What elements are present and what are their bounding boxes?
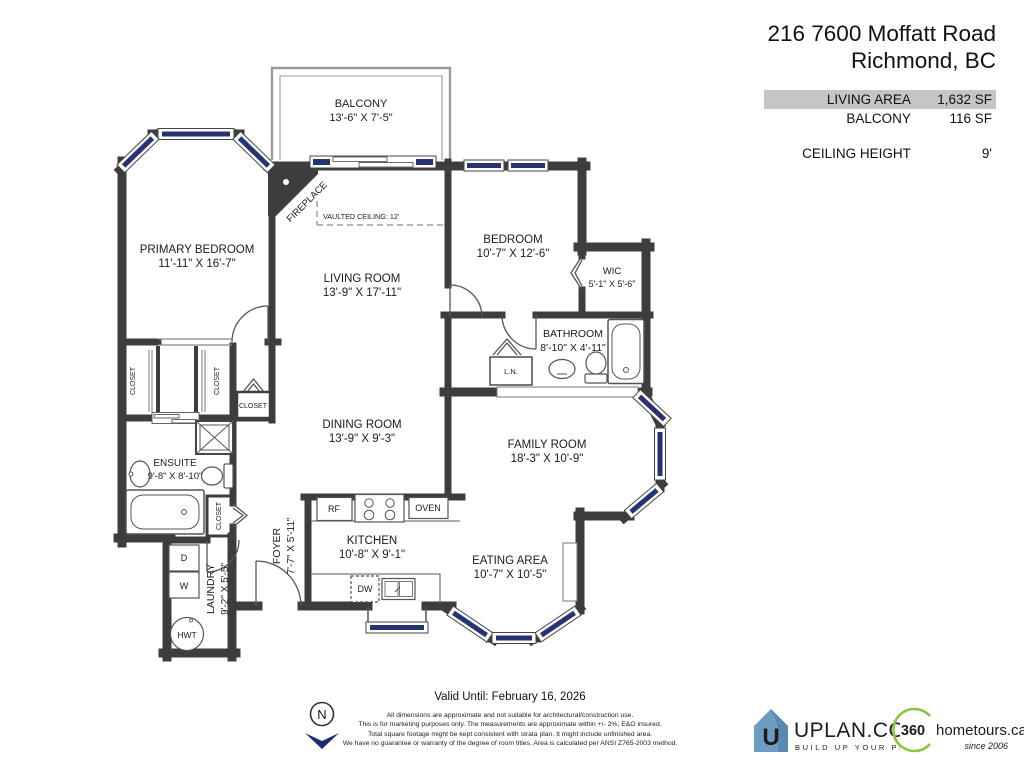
room-dims-kitchen: 10'-8" X 9'-1" <box>339 549 405 561</box>
closet-label-4: CLOSET <box>216 501 223 530</box>
hometours-name: hometours.ca <box>936 722 1024 739</box>
closet-label-1: CLOSET <box>130 366 137 395</box>
room-dims-foyer: 7'-7" X 5'-11" <box>286 517 297 574</box>
oven-label: OVEN <box>415 503 441 513</box>
bathroom-toilet <box>585 352 607 383</box>
bathtub <box>608 320 644 384</box>
room-label-living-room: LIVING ROOM <box>324 273 401 285</box>
room-label-eating-area: EATING AREA <box>472 555 548 567</box>
room-label-foyer: FOYER <box>271 527 283 564</box>
uplan-house-icon: U <box>754 709 788 752</box>
kitchen-sink <box>382 579 415 600</box>
header: 216 7600 Moffatt Road Richmond, BC LIVIN… <box>764 20 996 163</box>
stat-row-balcony: BALCONY 116 SF <box>764 109 996 128</box>
dishwasher-label: DW <box>358 584 373 594</box>
family-room-opening <box>497 387 638 397</box>
valid-until: Valid Until: February 16, 2026 <box>260 691 760 703</box>
eating-area-ledge <box>563 543 577 601</box>
room-label-family-room: FAMILY ROOM <box>508 439 587 451</box>
address-line2: Richmond, BC <box>764 47 996 74</box>
room-dims-dining-room: 13'-9" X 9'-3" <box>329 433 395 445</box>
disclaimer: All dimensions are approximate and not s… <box>260 711 760 748</box>
linen-bifold <box>493 339 521 355</box>
hall-closet-bifold <box>243 379 264 392</box>
room-label-wic: WIC <box>603 266 622 277</box>
closet-label-2: CLOSET <box>214 366 221 395</box>
room-dims-laundry: 9'-2" X 5'-5" <box>220 563 231 616</box>
cased-openings <box>158 339 232 345</box>
room-label-bedroom: BEDROOM <box>483 234 542 246</box>
disclaimer-line: This is for marketing purposes only. The… <box>260 720 760 729</box>
room-dims-family-room: 18'-3" X 10'-9" <box>511 453 584 465</box>
ensuite-tub <box>126 490 204 534</box>
stat-value: 116 SF <box>915 109 996 128</box>
vaulted-ceiling-label: VAULTED CEILING: 12' <box>323 212 400 221</box>
room-dims-bathroom: 8'-10" X 4'-11" <box>540 342 606 354</box>
address-line1: 216 7600 Moffatt Road <box>764 20 996 47</box>
svg-text:U: U <box>762 724 779 751</box>
uplan-logo: U UPLAN.CO BUILD UP YOUR PLAN <box>750 704 900 761</box>
closet-divider-walls <box>158 346 196 414</box>
floorplan-page: BALCONY 13'-6" X 7'-5" PRIMARY BEDROOM 1… <box>0 0 1024 768</box>
washer-label: W <box>180 581 189 591</box>
stat-label: BALCONY <box>764 109 915 128</box>
shower <box>196 421 233 454</box>
area-stats-table: LIVING AREA 1,632 SF BALCONY 116 SF CEIL… <box>764 90 996 163</box>
disclaimer-line: Total square footage might be kept consi… <box>260 730 760 739</box>
hwt-label: HWT <box>177 630 196 640</box>
room-label-laundry: LAUNDRY <box>205 564 217 614</box>
bathroom-sink <box>549 360 575 379</box>
fridge-label: RF <box>328 504 340 514</box>
hometours-since: since 2006 <box>964 741 1008 751</box>
stat-value: 1,632 SF <box>915 90 996 109</box>
ensuite-toilet <box>202 464 234 488</box>
room-label-ensuite: ENSUITE <box>153 458 197 469</box>
wic-bifold <box>571 256 582 290</box>
balcony-sliding-door <box>310 156 436 168</box>
room-dims-primary-bedroom: 11'-11" X 16'-7" <box>158 258 235 270</box>
hometours-360: 360 <box>901 723 925 739</box>
room-dims-ensuite: 9'-8" X 8'-10" <box>148 471 203 482</box>
disclaimer-line: We have no guarantee or warranty of the … <box>260 739 760 748</box>
room-dims-bedroom: 10'-7" X 12'-6" <box>477 248 550 260</box>
stat-value: 9' <box>915 144 996 163</box>
room-dims-eating-area: 10'-7" X 10'-5" <box>474 569 547 581</box>
stat-row-ceiling-height: CEILING HEIGHT 9' <box>764 144 996 163</box>
windows <box>117 129 671 644</box>
room-label-dining-room: DINING ROOM <box>322 419 401 431</box>
primary-bedroom-door <box>232 306 268 342</box>
room-label-primary-bedroom: PRIMARY BEDROOM <box>140 244 255 256</box>
ensuite-sliding-door <box>152 413 199 424</box>
stat-label: CEILING HEIGHT <box>764 144 915 163</box>
hometours-logo: 360 hometours.ca since 2006 <box>884 706 1024 761</box>
dryer-label: D <box>181 553 188 563</box>
room-label-kitchen: KITCHEN <box>347 535 397 547</box>
stat-label: LIVING AREA <box>764 90 915 109</box>
disclaimer-line: All dimensions are approximate and not s… <box>260 711 760 720</box>
room-dims-wic: 5'-1" X 5'-6" <box>589 279 636 289</box>
room-dims-balcony: 13'-6" X 7'-5" <box>329 112 392 124</box>
linen-label: L.N. <box>504 367 518 376</box>
room-dims-living-room: 13'-9" X 17'-11" <box>323 287 401 299</box>
closet-label-3: CLOSET <box>239 403 268 410</box>
stat-row-living-area: LIVING AREA 1,632 SF <box>764 90 996 109</box>
room-label-balcony: BALCONY <box>335 98 388 110</box>
cooktop <box>355 495 404 523</box>
room-label-bathroom: BATHROOM <box>543 328 603 340</box>
